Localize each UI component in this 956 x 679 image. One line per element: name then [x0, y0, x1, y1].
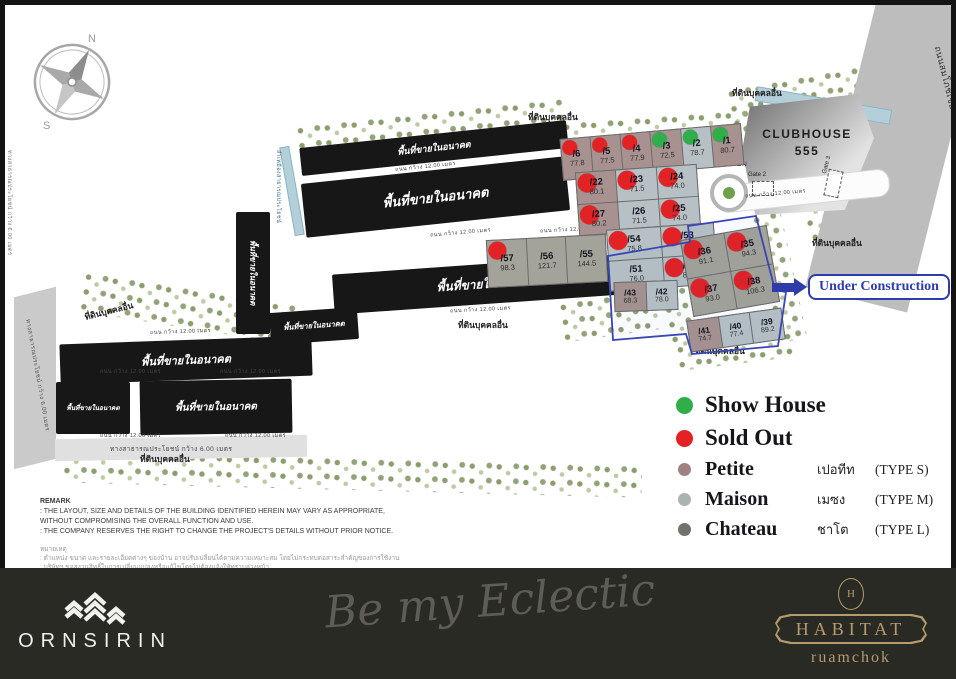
sold-dot-icon: [664, 257, 684, 277]
habitat-plaque: HABITAT: [775, 614, 927, 644]
plot-1[interactable]: /180.7: [711, 124, 744, 166]
plot-area: 80.7: [720, 146, 735, 155]
remark-line: : THE COMPANY RESERVES THE RIGHT TO CHAN…: [40, 527, 399, 537]
ornsirin-chevrons-icon: [60, 590, 130, 626]
legend-show-house: Show House: [676, 392, 933, 418]
legend-type: (TYPE L): [875, 522, 929, 538]
legend-maison: Maison เมซง (TYPE M): [676, 488, 933, 511]
plot-area: 78.7: [690, 148, 705, 157]
plot-area: 77.4: [729, 330, 744, 339]
future-area-label: พื้นที่ขายในอนาคต: [247, 240, 260, 305]
future-area-label: พื้นที่ขายในอนาคต: [283, 318, 345, 334]
plot-36[interactable]: /3691.1: [681, 234, 729, 278]
legend-thai: เมซง: [817, 489, 875, 510]
legend: Show House Sold Out Petite เปอทีท (TYPE …: [676, 392, 933, 541]
plot-area: 121.7: [538, 262, 557, 271]
legend-chateau: Chateau ชาโต (TYPE L): [676, 518, 933, 541]
remark-thai-title: หมายเหตุ: [40, 545, 399, 554]
plot-area: 78.0: [655, 296, 669, 304]
plot-22[interactable]: /2280.1: [576, 171, 617, 204]
legend-type: (TYPE S): [875, 462, 929, 478]
plot-40[interactable]: /4077.4: [719, 313, 754, 347]
plot-39[interactable]: /3989.2: [750, 309, 785, 343]
tagline-script: Be my Eclectic: [289, 562, 692, 641]
plot-cluster-35-38: /3691.1/3594.3/3793.0/38106.3: [680, 225, 780, 317]
habitat-monogram-icon: H: [838, 578, 864, 610]
future-area-label: พื้นที่ขายในอนาคต: [175, 399, 257, 415]
plot-area: 71.5: [630, 185, 645, 194]
road-label: ถนน กว้าง 12.00 เมตร: [220, 368, 281, 376]
plot-area: 93.0: [705, 293, 721, 303]
plot-area: 80.1: [589, 188, 604, 197]
legend-sold-out: Sold Out: [676, 425, 933, 451]
future-area-label: พื้นที่ขายในอนาคต: [397, 137, 472, 159]
plot-area: 106.3: [746, 286, 766, 297]
plot-area: 98.3: [500, 264, 515, 273]
plot-area: 77.9: [630, 154, 645, 163]
future-area-strip: พื้นที่ขายในอนาคต: [236, 212, 270, 334]
plot-24[interactable]: /2474.0: [656, 165, 697, 198]
plot-area: 91.1: [698, 256, 714, 266]
petite-dot-icon: [678, 463, 691, 476]
legend-label: Show House: [705, 392, 826, 418]
ornsirin-logo: ORNSIRIN: [30, 590, 160, 653]
footer: ORNSIRIN Be my Eclectic H HABITAT ruamch…: [0, 568, 956, 679]
plot-57[interactable]: /5798.3: [487, 239, 528, 287]
plot-54[interactable]: /5475.8: [607, 227, 661, 260]
plot-37[interactable]: /3793.0: [688, 272, 736, 316]
plot-area: 77.5: [600, 156, 615, 165]
sold-out-dot-icon: [676, 430, 693, 447]
gate2-label: Gate 2: [748, 172, 766, 178]
master-plan-page: ถนนสมโภชเชียงใหม่ 700 ปี (ชม.3029) ลำเหม…: [0, 0, 956, 679]
other-land-label: ที่ดินบุคคลอื่น: [812, 236, 862, 250]
future-area-label: พื้นที่ขายในอนาคต: [66, 403, 119, 413]
future-area-strip: พื้นที่ขายในอนาคต: [56, 382, 130, 434]
road-label: ถนน กว้าง 12.00 เมตร: [150, 327, 211, 337]
habitat-plaque-inner: HABITAT: [777, 616, 925, 642]
plot-35[interactable]: /3594.3: [724, 226, 772, 270]
future-area-strip: พื้นที่ขายในอนาคต: [140, 379, 293, 436]
plot-23[interactable]: /2371.5: [616, 168, 657, 201]
plot-42[interactable]: /4278.0: [646, 281, 677, 310]
legend-label: Chateau: [705, 518, 817, 541]
plot-41[interactable]: /4174.7: [687, 317, 722, 351]
plot-cluster-55-57: /5798.3/56121.7/55144.5: [486, 234, 608, 288]
plot-number: /42: [656, 287, 668, 296]
road-label: ถนน กว้าง 12.00 เมตร: [430, 226, 491, 239]
compass-south: S: [43, 120, 50, 132]
canal-label: ลำเหมืองสาธารณประโยชน์: [274, 150, 282, 223]
edge-road-label: ทางสาธารณประโยชน์ กว้าง 6.00 เมตร: [5, 150, 13, 255]
legend-label: Sold Out: [705, 425, 793, 451]
plot-area: 74.0: [672, 213, 687, 222]
compass-north: N: [88, 33, 96, 45]
plot-area: 74.7: [698, 334, 713, 343]
remark-thai-line: : ตำแหน่ง ขนาด และรายละเอียดต่างๆ ของบ้า…: [40, 554, 399, 563]
other-land-label: ที่ดินบุคคลอื่น: [458, 318, 508, 332]
plot-area: 80.2: [592, 219, 607, 228]
legend-label: Petite: [705, 458, 817, 481]
plot-area: 74.0: [670, 182, 685, 191]
plot-area: 71.5: [632, 216, 647, 225]
remark-block: REMARK : THE LAYOUT, SIZE AND DETAILS OF…: [40, 497, 399, 573]
legend-thai: เปอทีท: [817, 459, 875, 480]
legend-type: (TYPE M): [875, 492, 933, 508]
sold-dot-icon: [608, 230, 628, 250]
legend-label: Maison: [705, 488, 817, 511]
under-construction-arrow-icon: [772, 283, 794, 292]
plot-area: 89.2: [761, 325, 776, 334]
chateau-dot-icon: [678, 523, 691, 536]
maison-dot-icon: [678, 493, 691, 506]
frame-right: [951, 0, 956, 568]
future-area-label: พื้นที่ขายในอนาคต: [382, 181, 490, 213]
frame-top: [0, 0, 956, 5]
plot-43[interactable]: /4368.3: [615, 282, 646, 311]
other-land-label: ที่ดินบุคคลอื่น: [140, 452, 190, 466]
plot-area: 72.5: [660, 151, 675, 160]
habitat-logo: H HABITAT ruamchok: [766, 578, 936, 667]
road-label: ถนน กว้าง 12.00 เมตร: [100, 432, 161, 440]
plot-area: 94.3: [741, 248, 757, 258]
plot-area: 77.8: [570, 159, 585, 168]
legend-thai: ชาโต: [817, 519, 875, 540]
show-house-dot-icon: [676, 397, 693, 414]
future-area-strip: พื้นที่ขายในอนาคต: [59, 336, 312, 385]
plot-area: 75.8: [627, 244, 642, 253]
roundabout-island: [723, 187, 735, 199]
plot-56[interactable]: /56121.7: [526, 237, 567, 285]
plot-area: 144.5: [577, 259, 596, 268]
remark-line: : THE LAYOUT, SIZE AND DETAILS OF THE BU…: [40, 507, 399, 517]
clubhouse-number: 555: [752, 143, 862, 160]
remark-line: WITHOUT COMPROMISING THE OVERALL FUNCTIO…: [40, 517, 399, 527]
sold-dot-icon: [661, 227, 681, 247]
frame-left: [0, 0, 5, 568]
habitat-sub-brand: ruamchok: [811, 649, 891, 667]
compass-icon: N S: [26, 28, 118, 132]
ornsirin-wordmark: ORNSIRIN: [18, 630, 172, 653]
remark-title: REMARK: [40, 497, 399, 507]
other-land-label: ที่ดินบุคคลอื่น: [528, 110, 578, 124]
clubhouse-label: CLUBHOUSE 555: [752, 126, 862, 160]
other-land-label: ที่ดินบุคคลอื่น: [732, 86, 782, 100]
plot-55[interactable]: /55144.5: [566, 235, 607, 283]
road-label: ถนน กว้าง 12.00 เมตร: [225, 432, 286, 440]
roundabout: [710, 174, 748, 212]
legend-petite: Petite เปอทีท (TYPE S): [676, 458, 933, 481]
plot-cluster-42-43: /4368.3/4278.0: [613, 280, 678, 312]
road-label: ถนน กว้าง 12.00 เมตร: [100, 368, 161, 376]
plot-area: 68.3: [623, 297, 637, 305]
road-label: ถนน กว้าง 12.00 เมตร: [450, 304, 511, 315]
habitat-wordmark: HABITAT: [796, 619, 907, 640]
under-construction-badge: Under Construction: [808, 274, 950, 300]
clubhouse-name: CLUBHOUSE: [752, 126, 862, 143]
plot-number: /43: [624, 288, 636, 297]
plot-2[interactable]: /278.7: [681, 127, 714, 169]
